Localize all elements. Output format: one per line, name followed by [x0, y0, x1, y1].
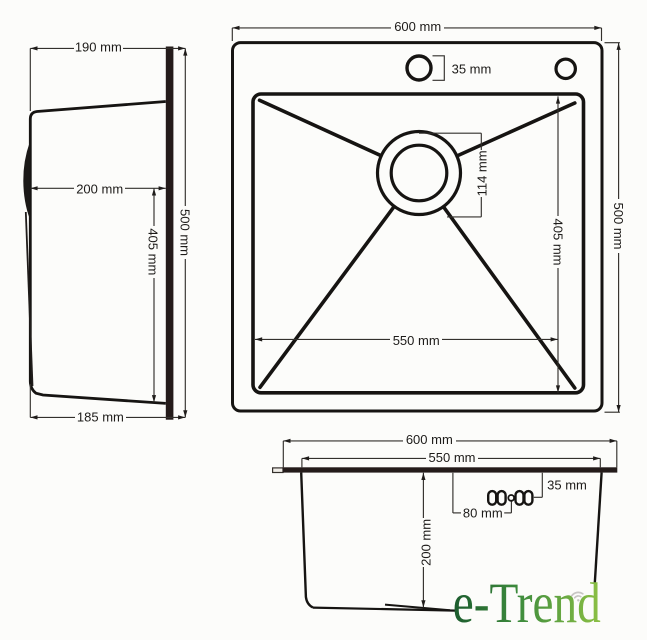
- svg-text:200 mm: 200 mm: [76, 181, 123, 196]
- svg-text:500 mm: 500 mm: [611, 203, 626, 250]
- svg-text:190 mm: 190 mm: [75, 39, 122, 54]
- svg-text:550 mm: 550 mm: [393, 333, 440, 348]
- svg-text:e-Trend: e-Trend: [453, 572, 601, 635]
- svg-text:35 mm: 35 mm: [452, 62, 492, 77]
- svg-text:600 mm: 600 mm: [394, 19, 441, 34]
- svg-text:550 mm: 550 mm: [429, 450, 476, 465]
- svg-text:600 mm: 600 mm: [406, 432, 453, 447]
- svg-text:35 mm: 35 mm: [547, 478, 587, 493]
- svg-text:405 mm: 405 mm: [146, 228, 161, 275]
- svg-text:500 mm: 500 mm: [177, 209, 192, 256]
- svg-text:80 mm: 80 mm: [463, 506, 503, 521]
- svg-text:405 mm: 405 mm: [550, 219, 565, 266]
- svg-text:114 mm: 114 mm: [475, 150, 490, 196]
- svg-text:185 mm: 185 mm: [77, 410, 124, 425]
- svg-text:200 mm: 200 mm: [418, 519, 433, 566]
